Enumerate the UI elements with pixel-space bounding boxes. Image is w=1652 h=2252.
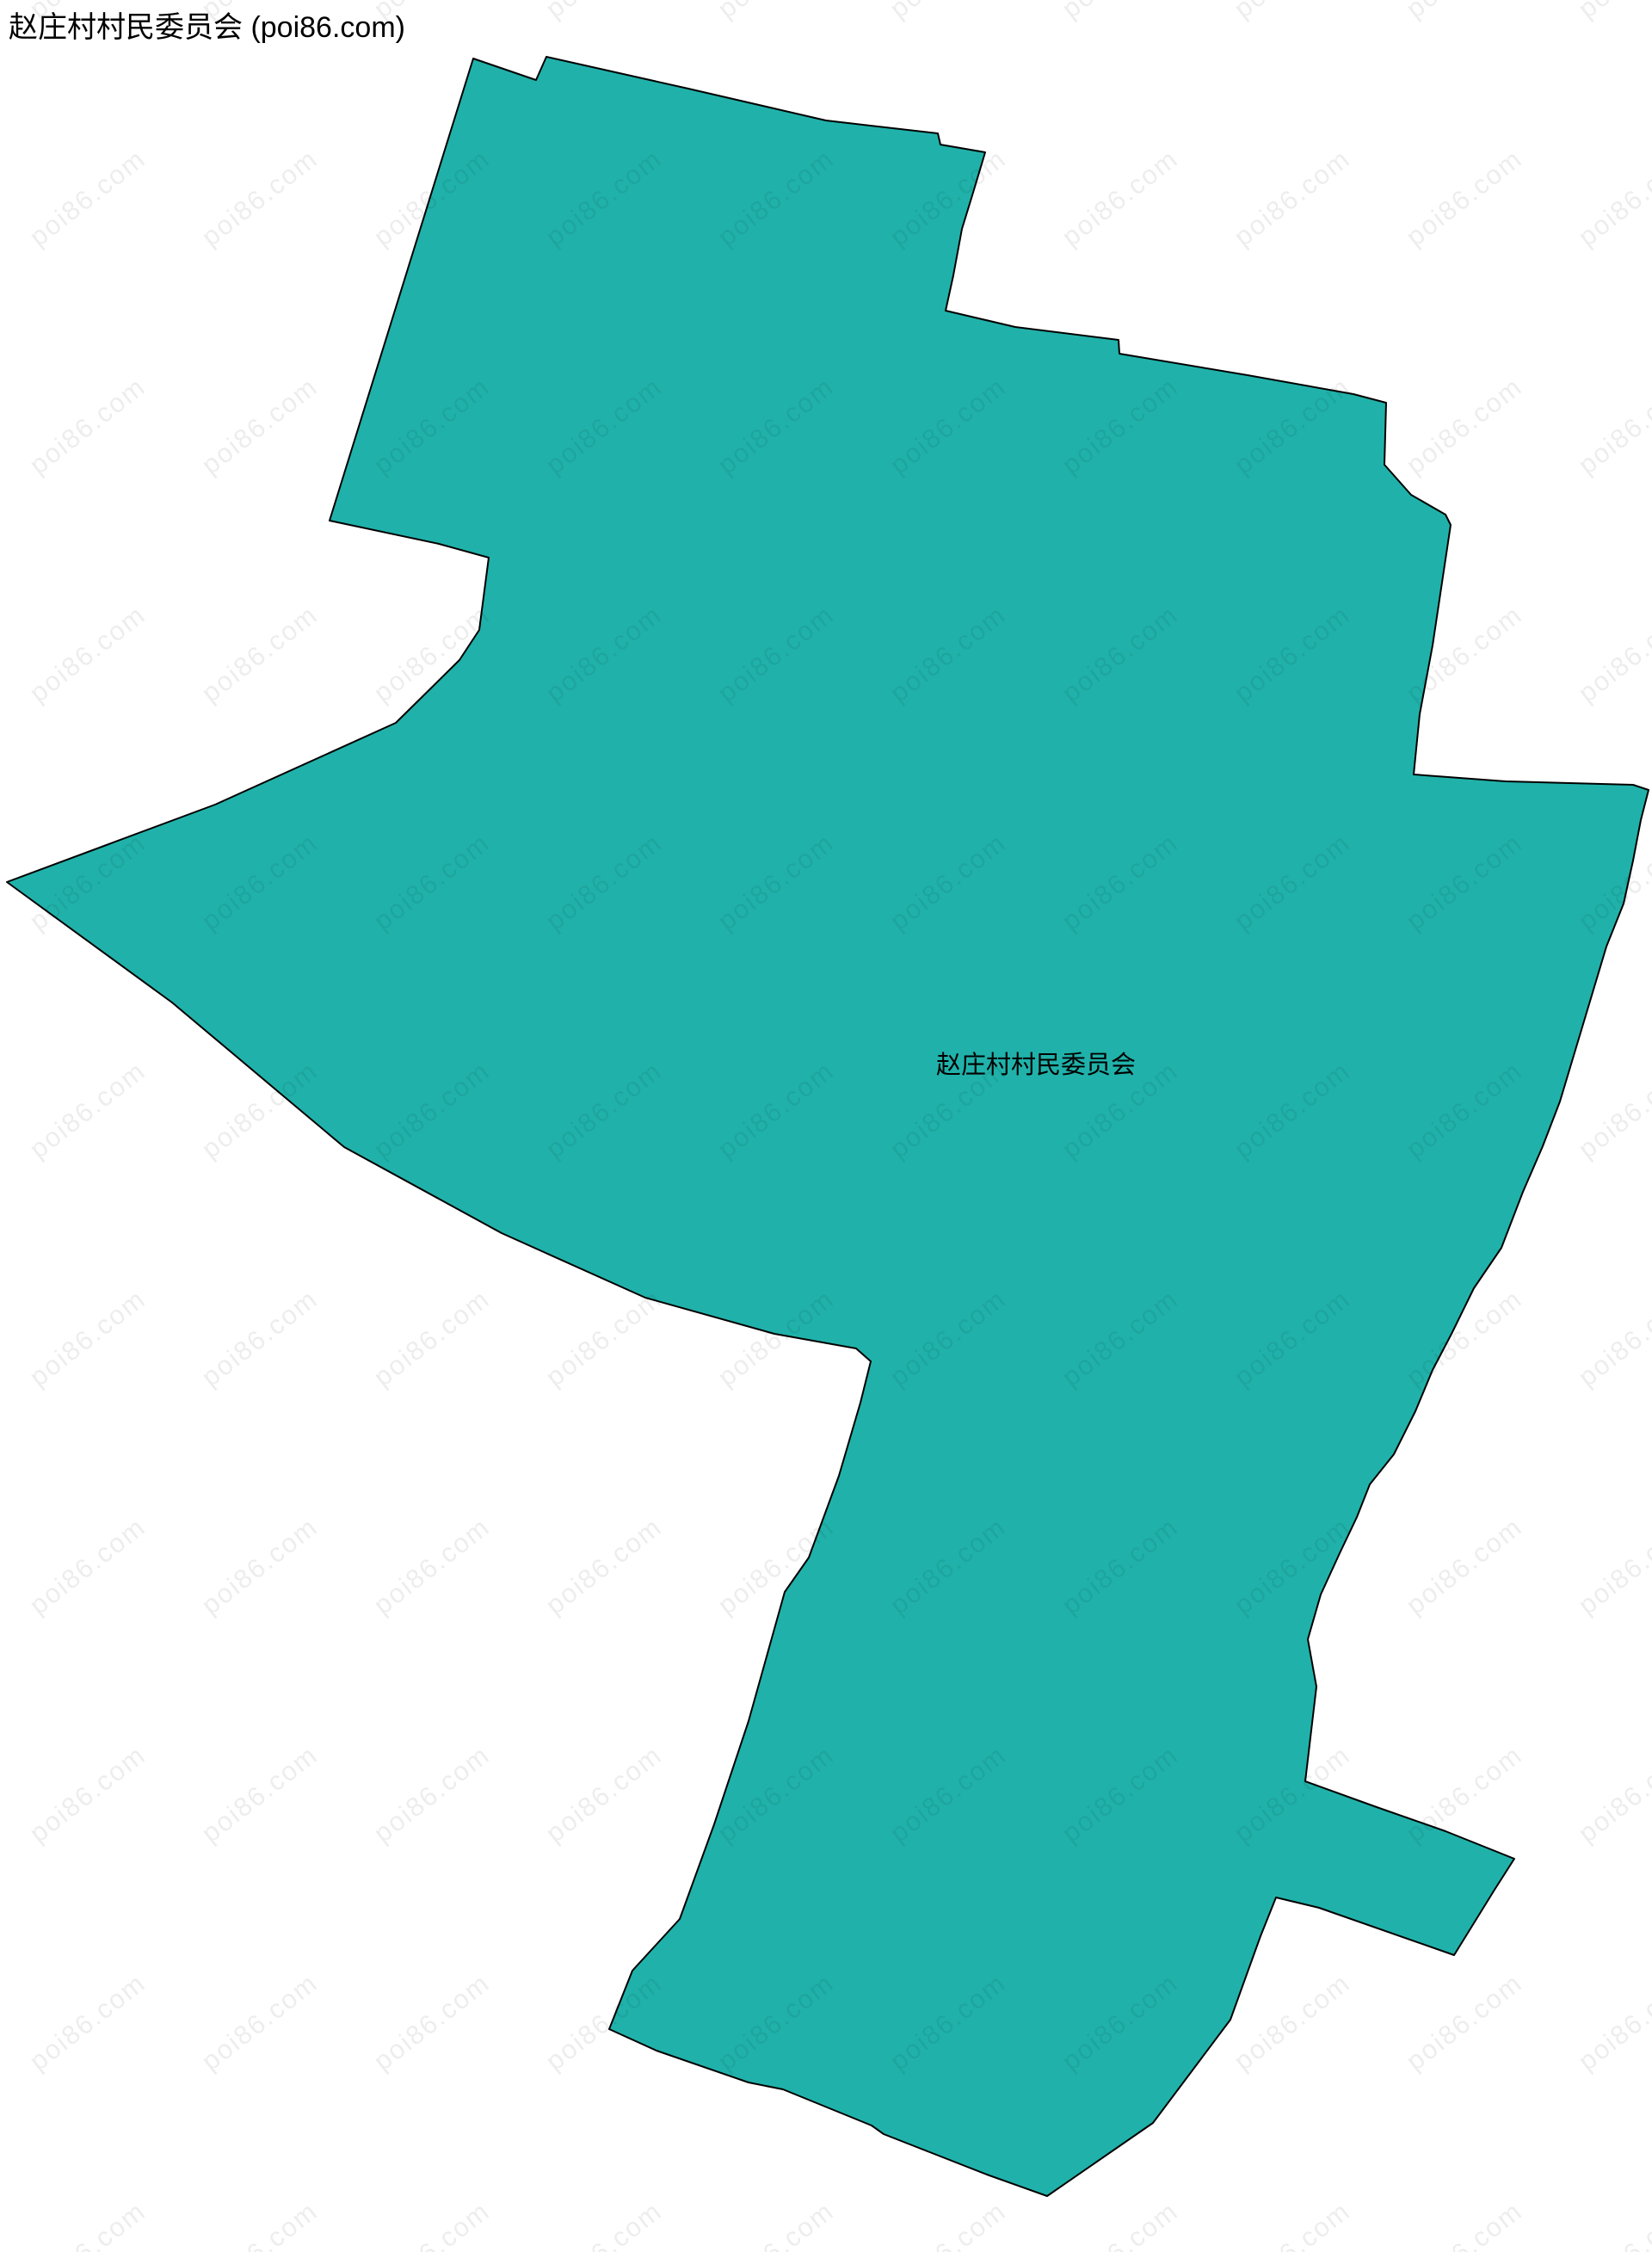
region-polygon <box>7 57 1649 2196</box>
map-canvas: 赵庄村村民委员会 (poi86.com) 赵庄村村民委员会 poi86.comp… <box>0 0 1652 2252</box>
page-title: 赵庄村村民委员会 (poi86.com) <box>9 3 405 46</box>
region-label: 赵庄村村民委员会 <box>936 1045 1136 1081</box>
region-map <box>0 0 1652 2252</box>
